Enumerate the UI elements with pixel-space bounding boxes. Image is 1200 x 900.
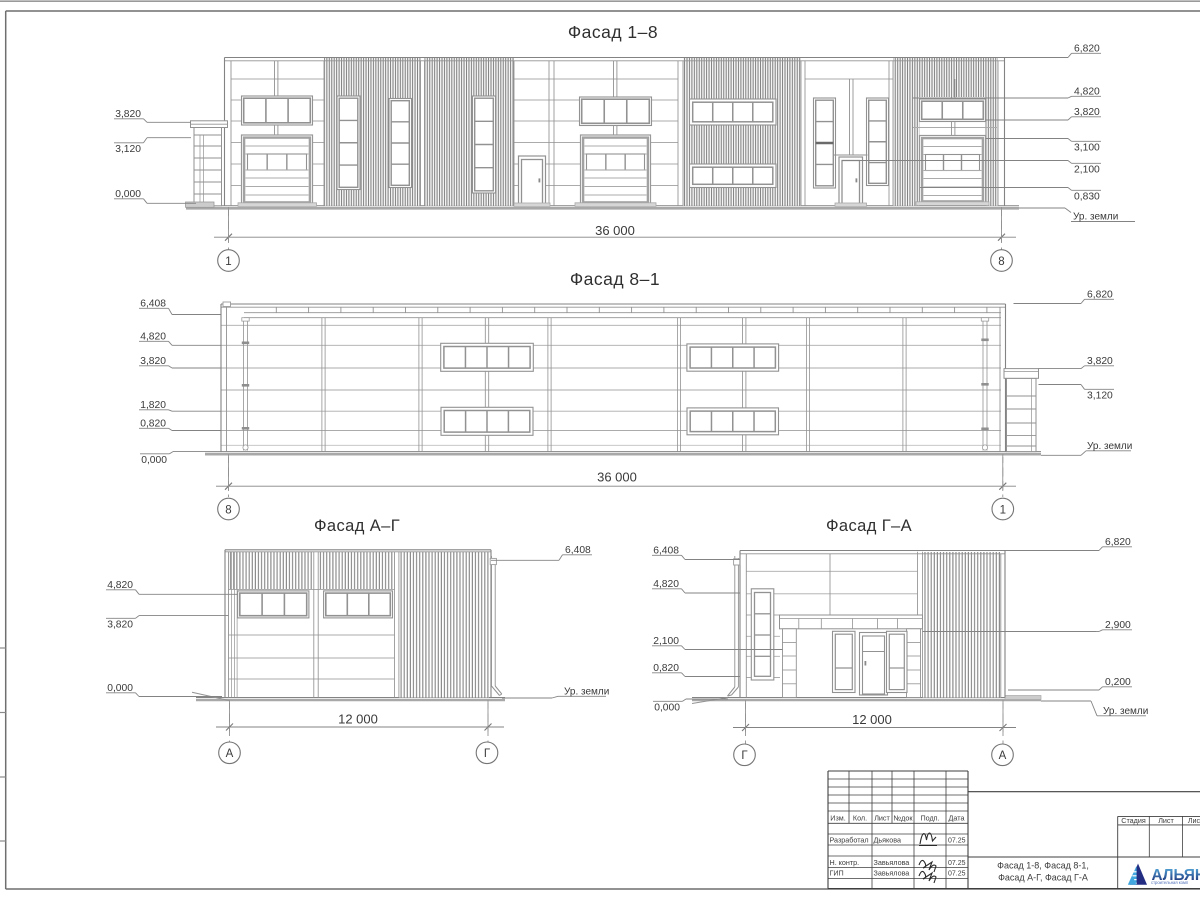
svg-text:Завьялова: Завьялова — [874, 858, 910, 867]
svg-text:Фасад 1–8: Фасад 1–8 — [568, 22, 658, 42]
svg-text:Фасад А–Г: Фасад А–Г — [314, 517, 400, 535]
svg-text:Фасад А-Г, Фасад Г-А: Фасад А-Г, Фасад Г-А — [998, 873, 1088, 883]
svg-text:Лист: Лист — [1158, 816, 1174, 825]
svg-text:А: А — [226, 748, 234, 760]
svg-text:Ур. земли: Ур. земли — [564, 686, 609, 697]
svg-text:12 000: 12 000 — [338, 712, 378, 727]
svg-text:1: 1 — [225, 256, 231, 268]
svg-text:Ур. земли: Ур. земли — [1087, 441, 1132, 452]
svg-text:12 000: 12 000 — [852, 712, 892, 727]
svg-text:Дата: Дата — [949, 814, 965, 823]
svg-text:0,000: 0,000 — [141, 455, 167, 466]
svg-text:0,830: 0,830 — [1074, 192, 1100, 203]
svg-text:Лист: Лист — [874, 814, 890, 823]
svg-text:36 000: 36 000 — [595, 223, 635, 238]
svg-text:3,120: 3,120 — [115, 144, 141, 155]
svg-text:Завьялова: Завьялова — [874, 869, 910, 878]
svg-text:Ур. земли: Ур. земли — [1103, 706, 1148, 717]
svg-text:Г: Г — [484, 748, 491, 760]
svg-text:1: 1 — [1000, 504, 1006, 516]
svg-text:07.25: 07.25 — [948, 838, 966, 845]
svg-text:8: 8 — [998, 256, 1004, 268]
svg-text:ГИП: ГИП — [830, 869, 844, 878]
svg-text:Разработал: Разработал — [830, 836, 869, 845]
svg-text:строительная комп: строительная комп — [1151, 880, 1188, 885]
svg-text:07.25: 07.25 — [948, 860, 966, 867]
svg-text:07.25: 07.25 — [948, 871, 966, 878]
svg-text:Подп.: Подп. — [920, 814, 939, 823]
svg-text:8: 8 — [225, 504, 231, 516]
svg-text:Дьякова: Дьякова — [874, 836, 901, 845]
svg-text:Г: Г — [741, 750, 748, 762]
svg-text:Лис: Лис — [1188, 816, 1200, 825]
svg-text:4,820: 4,820 — [1074, 87, 1100, 98]
svg-text:3,820: 3,820 — [107, 620, 133, 631]
svg-text:3,820: 3,820 — [115, 109, 141, 120]
svg-text:Ур. земли: Ур. земли — [1073, 212, 1118, 223]
svg-text:3,820: 3,820 — [1074, 107, 1100, 118]
svg-text:3,120: 3,120 — [1087, 391, 1113, 402]
svg-text:Фасад 1-8, Фасад 8-1,: Фасад 1-8, Фасад 8-1, — [997, 861, 1089, 871]
svg-text:Н. контр.: Н. контр. — [830, 858, 860, 867]
svg-text:Стадия: Стадия — [1121, 816, 1146, 825]
svg-text:Фасад 8–1: Фасад 8–1 — [570, 269, 660, 289]
svg-text:0,000: 0,000 — [654, 703, 680, 714]
svg-text:Фасад Г–А: Фасад Г–А — [826, 517, 912, 535]
svg-text:А: А — [999, 750, 1007, 762]
svg-text:Кол.: Кол. — [853, 814, 867, 823]
svg-text:36 000: 36 000 — [597, 470, 637, 485]
svg-text:2,100: 2,100 — [1074, 165, 1100, 176]
svg-text:3,100: 3,100 — [1074, 143, 1100, 154]
svg-text:Изм.: Изм. — [830, 814, 845, 823]
svg-text:№док: №док — [893, 814, 913, 823]
